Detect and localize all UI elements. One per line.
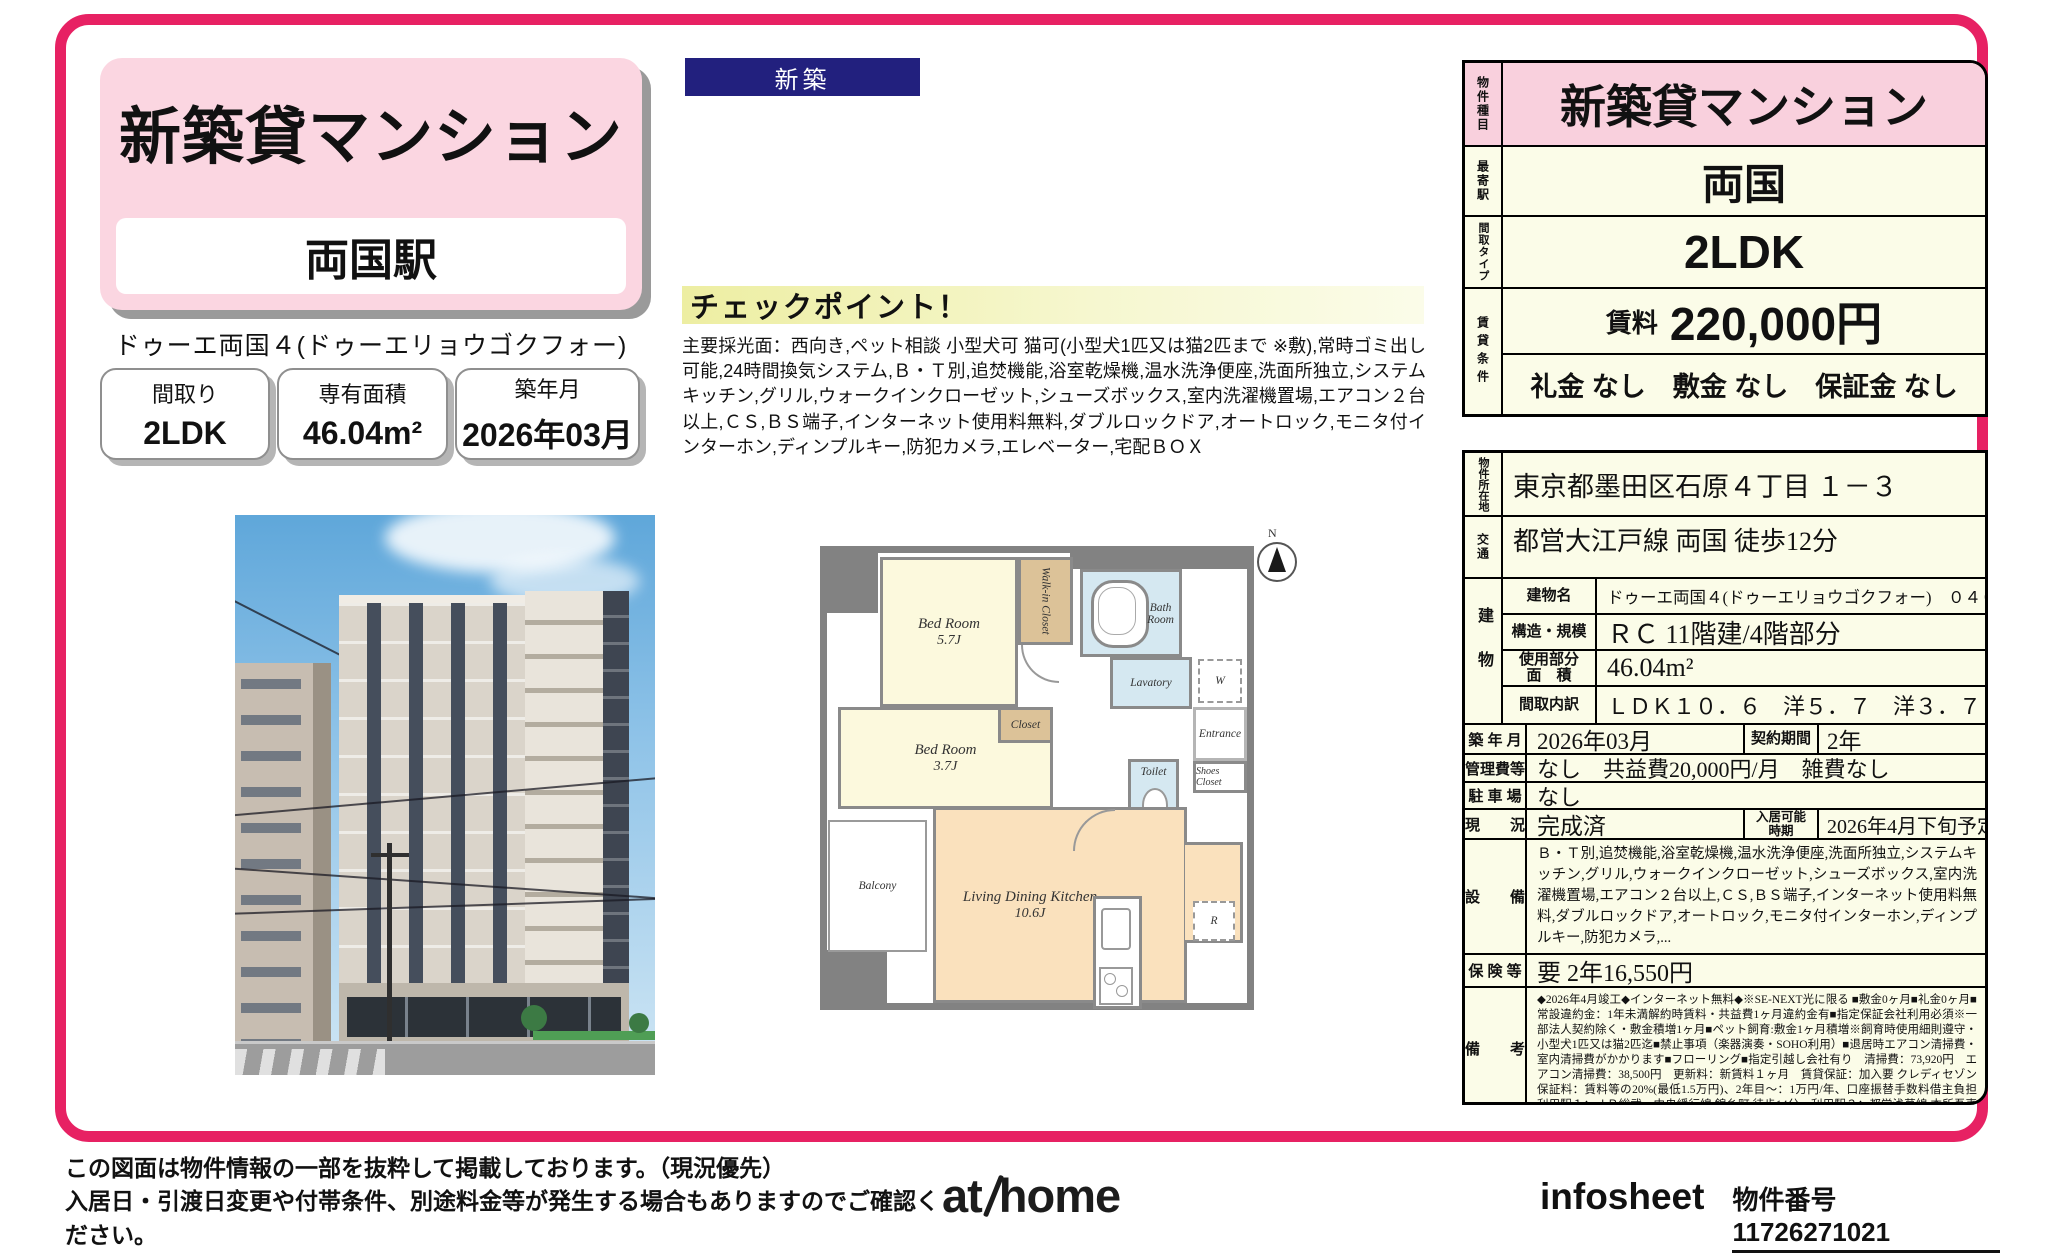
floor-plan-outline: Bed Room 5.7J Walk-in Closet Bath Room L… (820, 546, 1254, 1010)
building-label: 建物 (1465, 579, 1503, 723)
new-badge: 新築 (685, 58, 920, 96)
address-value: 東京都墨田区石原４丁目 １－３ (1503, 453, 1985, 515)
footer-notes: この図面は物件情報の一部を抜粋して掲載しております。（現況優先） 入居日・引渡日… (65, 1152, 945, 1252)
summary-row-terms: 賃貸条件 賃料 220,000円 礼金 なし 敷金 なし 保証金 なし (1465, 289, 1985, 414)
terms-label: 賃貸条件 (1465, 289, 1503, 414)
row-insurance: 保 険 等 要 2年16,550円 (1465, 955, 1985, 988)
status-label: 現 況 (1465, 810, 1527, 838)
stat-built: 築年月 2026年03月 (455, 368, 640, 460)
station-label: 最寄駅 (1465, 147, 1503, 215)
shoes-closet: Shoes Closet (1193, 761, 1247, 793)
balcony: Balcony (828, 820, 927, 952)
building-name-row: 建物名 ドゥーエ両国４(ドゥーエリョウゴクフォー) ０４０２ (1503, 579, 1988, 615)
details-table: 物件所在地 東京都墨田区石原４丁目 １－３ 交通 都営大江戸線 両国 徒歩12分… (1462, 450, 1988, 1105)
entrance: Entrance (1193, 707, 1247, 761)
rent-value: 220,000円 (1670, 288, 1882, 354)
building-name-label: 建物名 (1503, 579, 1597, 613)
address-label: 物件所在地 (1465, 453, 1503, 515)
balcony-label: Balcony (859, 880, 897, 892)
built-value: 2026年03月 (1527, 725, 1743, 753)
crosswalk (235, 1049, 385, 1075)
toilet-label: Toilet (1141, 766, 1167, 778)
tree (629, 1013, 649, 1033)
summary-row-layout: 間取タイプ 2LDK (1465, 217, 1985, 289)
entrance-label: Entrance (1199, 728, 1241, 740)
fridge-label: R (1210, 915, 1217, 927)
summary-table: 物件種目 新築貸マンション 最寄駅 両国 間取タイプ 2LDK 賃貸条件 賃料 … (1462, 60, 1988, 417)
row-notes: 備 考 ◆2026年4月竣工◆インターネット無料◆※SE-NEXT光に限る ■敷… (1465, 988, 1985, 1105)
bedroom-1-label: Bed Room (918, 616, 980, 633)
main-building-corner-glass (603, 591, 629, 985)
row-built: 築 年 月 2026年03月 契約期間 2年 (1465, 725, 1985, 755)
row-equipment: 設 備 Ｂ・Ｔ別,追焚機能,浴室乾燥機,温水洗浄便座,洗面所独立,システムキッチ… (1465, 840, 1985, 955)
ldk-label: Living Dining Kitchen (963, 889, 1097, 906)
row-address: 物件所在地 東京都墨田区石原４丁目 １－３ (1465, 453, 1985, 517)
mgmt-label: 管理費等 (1465, 755, 1527, 781)
stat-area-value: 46.04m² (303, 415, 422, 452)
wall-block (827, 553, 878, 613)
movein-label: 入居可能 時期 (1743, 810, 1819, 838)
athome-logo: at home (942, 1168, 1120, 1223)
stat-layout: 間取り 2LDK (100, 368, 270, 460)
door-arc (1021, 645, 1059, 683)
fees-row: 礼金 なし 敷金 なし 保証金 なし (1503, 355, 1985, 414)
layout-type-value: 2LDK (1503, 217, 1985, 287)
used-area-row: 使用部分 面 積 46.04m² (1503, 651, 1988, 687)
walk-in-closet: Walk-in Closet (1018, 557, 1073, 645)
washer-label: W (1215, 675, 1225, 687)
mgmt-value: なし 共益費20,000円/月 雑費なし (1527, 755, 1985, 781)
property-type-label: 物件種目 (1465, 63, 1503, 145)
station-value: 両国 (1503, 147, 1985, 215)
status-value: 完成済 (1527, 810, 1743, 838)
layout-detail-row: 間取内訳 ＬＤＫ１０．６ 洋５．７ 洋３．７ (1503, 687, 1988, 723)
structure-value: ＲＣ 11階建/4階部分 (1597, 615, 1988, 649)
insurance-label: 保 険 等 (1465, 955, 1527, 986)
wall-block (827, 950, 887, 1003)
neighbor-shade (313, 663, 331, 1075)
building-photo (235, 515, 655, 1075)
row-parking: 駐 車 場 なし (1465, 783, 1985, 810)
athome-logo-home: home (999, 1168, 1120, 1223)
bedroom-2-label: Bed Room (914, 742, 976, 759)
notes-value: ◆2026年4月竣工◆インターネット無料◆※SE-NEXT光に限る ■敷金0ヶ月… (1527, 988, 1985, 1105)
kitchen-counter (1093, 896, 1142, 1009)
stat-layout-label: 間取り (152, 377, 218, 409)
footer-right: infosheet 物件番号 11726271021 (1540, 1176, 2000, 1253)
parking-value: なし (1527, 783, 1985, 808)
summary-row-station: 最寄駅 両国 (1465, 147, 1985, 217)
bedroom-2-size: 3.7J (934, 759, 958, 775)
row-building: 建物 建物名 ドゥーエ両国４(ドゥーエリョウゴクフォー) ０４０２ 構造・規模 … (1465, 579, 1985, 725)
bathtub-icon (1091, 580, 1149, 648)
wall-block (1070, 553, 1247, 569)
ldk-size: 10.6J (1015, 906, 1046, 922)
infosheet-label: infosheet (1540, 1176, 1704, 1218)
walk-in-closet-label: Walk-in Closet (1040, 567, 1052, 635)
row-access: 交通 都営大江戸線 両国 徒歩12分 (1465, 517, 1985, 579)
parking-label: 駐 車 場 (1465, 783, 1527, 808)
washer-space: W (1198, 659, 1242, 703)
shoes-closet-label: Shoes Closet (1196, 766, 1244, 788)
closet-label: Closet (1011, 719, 1040, 731)
compass-n-label: N (1268, 526, 1277, 541)
access-label: 交通 (1465, 517, 1503, 577)
built-label: 築 年 月 (1465, 725, 1527, 753)
insurance-value: 要 2年16,550円 (1527, 955, 1985, 986)
bath-room: Bath Room (1080, 569, 1182, 657)
footer-note-2: 入居日・引渡日変更や付帯条件、別途料金等が発生する場合もありますのでご確認くださ… (65, 1185, 945, 1252)
footer-note-1: この図面は物件情報の一部を抜粋して掲載しております。（現況優先） (65, 1152, 945, 1185)
stat-area: 専有面積 46.04m² (277, 368, 448, 460)
layout-detail-label: 間取内訳 (1503, 687, 1597, 723)
used-area-label: 使用部分 面 積 (1503, 651, 1597, 685)
tree (521, 1005, 547, 1031)
equipment-label: 設 備 (1465, 840, 1527, 953)
floor-plan: N Bed Room 5.7J Walk-in Closet Bath Room… (820, 530, 1320, 1022)
stat-area-label: 専有面積 (318, 377, 406, 409)
contract-value: 2年 (1819, 725, 1985, 753)
closet: Closet (998, 707, 1053, 743)
summary-row-type: 物件種目 新築貸マンション (1465, 63, 1985, 147)
used-area-value: 46.04m² (1597, 651, 1988, 685)
contract-label: 契約期間 (1743, 725, 1819, 753)
checkpoint-title: チェックポイント！ (682, 286, 1424, 324)
station-name: 両国駅 (116, 218, 626, 294)
page-title: 新築貸マンション (100, 86, 642, 176)
rent-label: 賃料 (1606, 303, 1658, 340)
stat-layout-value: 2LDK (143, 415, 227, 452)
row-status: 現 況 完成済 入居可能 時期 2026年4月下旬予定 (1465, 810, 1985, 840)
lavatory-label: Lavatory (1130, 677, 1172, 689)
ldk-extension: R (1185, 842, 1243, 943)
equipment-value: Ｂ・Ｔ別,追焚機能,浴室乾燥機,温水洗浄便座,洗面所独立,システムキッチン,グリ… (1527, 840, 1985, 953)
structure-label: 構造・規模 (1503, 615, 1597, 649)
bedroom-1: Bed Room 5.7J (880, 557, 1018, 707)
fridge-space: R (1193, 901, 1235, 941)
bedroom-1-size: 5.7J (937, 633, 961, 649)
stat-built-value: 2026年03月 (462, 410, 633, 456)
layout-detail-value: ＬＤＫ１０．６ 洋５．７ 洋３．７ (1597, 687, 1988, 723)
property-number: 物件番号 11726271021 (1732, 1180, 2000, 1253)
checkpoint-body: 主要採光面：西向き,ペット相談 小型犬可 猫可(小型犬1匹又は猫2匹まで ※敷)… (682, 334, 1426, 460)
notes-label: 備 考 (1465, 988, 1527, 1105)
movein-value: 2026年4月下旬予定 (1819, 810, 1988, 838)
bath-room-label: Bath Room (1147, 602, 1174, 626)
building-name-value: ドゥーエ両国４(ドゥーエリョウゴクフォー) ０４０２ (1597, 579, 1988, 613)
layout-type-label: 間取タイプ (1465, 217, 1503, 287)
kitchen-sink-icon (1101, 908, 1131, 950)
lavatory: Lavatory (1110, 657, 1192, 709)
main-building-left-face (339, 603, 525, 985)
stove-icon (1099, 967, 1133, 1005)
utility-pole (387, 843, 392, 1043)
structure-row: 構造・規模 ＲＣ 11階建/4階部分 (1503, 615, 1988, 651)
access-value: 都営大江戸線 両国 徒歩12分 (1503, 517, 1985, 577)
compass-icon (1257, 542, 1297, 582)
property-type-value: 新築貸マンション (1503, 63, 1985, 145)
rent-row: 賃料 220,000円 (1503, 289, 1985, 355)
title-box: 新築貸マンション 両国駅 (100, 58, 642, 310)
stat-built-label: 築年月 (514, 372, 580, 404)
utility-pole-arm (371, 853, 409, 857)
athome-logo-at: at (942, 1168, 982, 1223)
living-dining-kitchen: Living Dining Kitchen 10.6J (933, 807, 1187, 1003)
